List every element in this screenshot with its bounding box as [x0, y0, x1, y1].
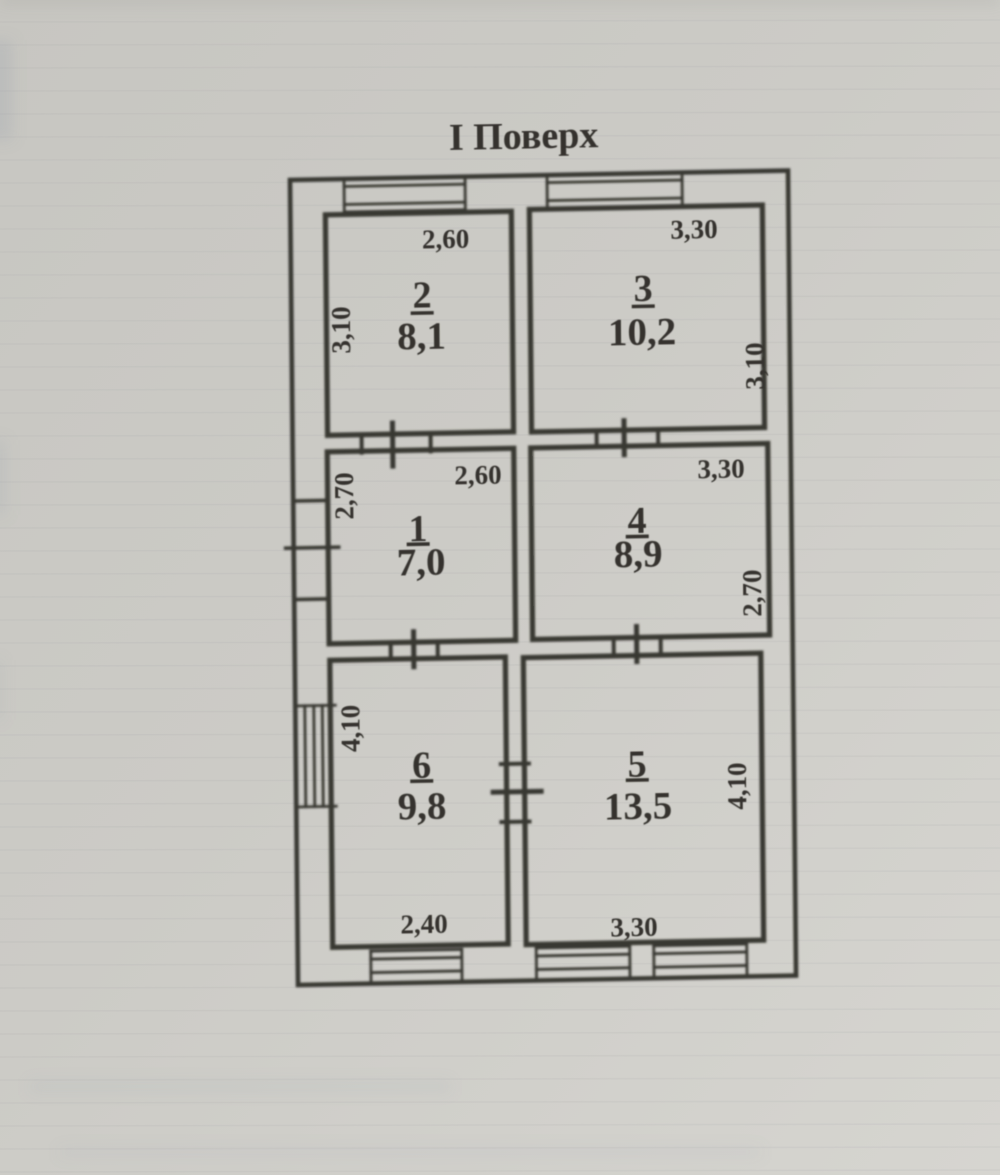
- svg-text:9,8: 9,8: [397, 785, 446, 829]
- svg-text:2,60: 2,60: [422, 224, 470, 255]
- svg-text:2,70: 2,70: [737, 569, 767, 617]
- svg-text:13,5: 13,5: [604, 784, 673, 828]
- svg-text:8,1: 8,1: [397, 315, 446, 359]
- svg-text:8,9: 8,9: [614, 532, 663, 576]
- svg-text:2,40: 2,40: [400, 909, 448, 940]
- svg-text:3,30: 3,30: [610, 912, 658, 943]
- svg-text:3,10: 3,10: [740, 342, 770, 390]
- svg-text:7,0: 7,0: [396, 541, 445, 585]
- svg-text:3: 3: [633, 268, 652, 310]
- svg-text:10,2: 10,2: [608, 310, 677, 354]
- svg-text:І Поверх: І Поверх: [449, 114, 599, 159]
- svg-text:3,30: 3,30: [670, 214, 718, 245]
- svg-text:4,10: 4,10: [335, 705, 365, 753]
- svg-text:3,30: 3,30: [697, 453, 745, 484]
- svg-text:2,70: 2,70: [329, 472, 359, 520]
- svg-text:2: 2: [412, 274, 431, 316]
- svg-text:2,60: 2,60: [454, 460, 502, 491]
- svg-text:3,10: 3,10: [326, 306, 356, 354]
- svg-text:4,10: 4,10: [722, 762, 752, 810]
